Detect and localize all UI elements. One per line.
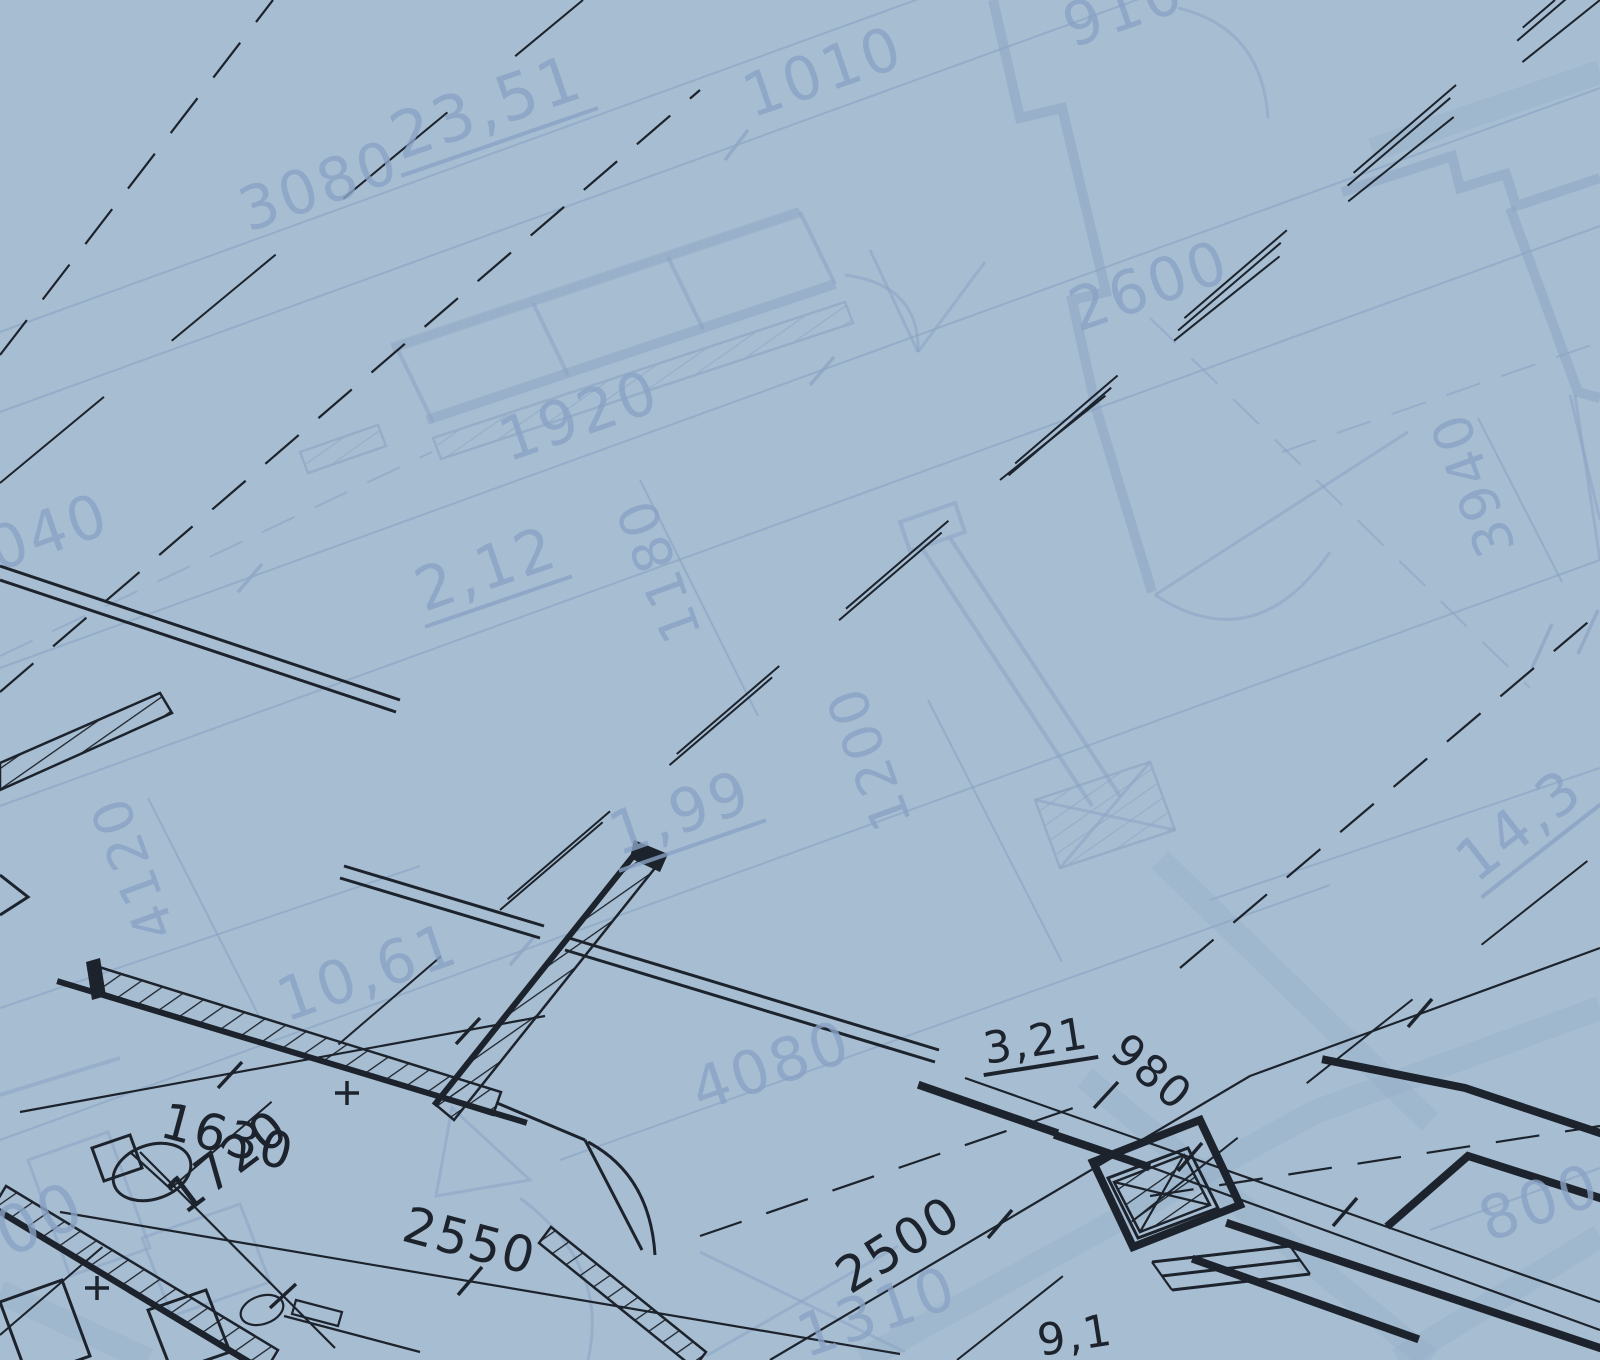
dimension-label-text: 1180 bbox=[604, 489, 714, 651]
faint-door-arc-top bbox=[845, 275, 918, 352]
dimension-label: 10,61 bbox=[268, 909, 467, 1036]
dimension-label: 9,1 bbox=[1034, 1305, 1117, 1360]
dark-hatched-walls bbox=[0, 693, 706, 1360]
faint-dashed-centerlines bbox=[0, 318, 1600, 688]
dimension-label: 14,3 bbox=[1440, 751, 1600, 898]
dimension-label-text: 1,99 bbox=[600, 757, 760, 871]
blueprint-canvas: 308023,511010910260019202,1210401,9910,6… bbox=[0, 0, 1600, 1360]
dimension-label-text: 910 bbox=[1054, 0, 1194, 62]
dimension-label: 3,21 bbox=[976, 1007, 1099, 1076]
dimension-labels: 308023,511010910260019202,1210401,9910,6… bbox=[0, 0, 1600, 1360]
dimension-label: 2,12 bbox=[402, 511, 572, 628]
dimension-label-text: 10,61 bbox=[268, 909, 467, 1036]
dimension-label-text: 4120 bbox=[78, 787, 188, 949]
faint-wall-top-fragment bbox=[300, 212, 985, 473]
dimension-label: 3080 bbox=[230, 126, 409, 246]
dark-room-walls bbox=[497, 1060, 1600, 1348]
dimension-label: 1040 bbox=[0, 479, 119, 599]
dimension-label-text: 1200 bbox=[814, 677, 924, 839]
blueprint-drawing: 308023,511010910260019202,1210401,9910,6… bbox=[0, 0, 1600, 1360]
dimension-label: 4120 bbox=[78, 787, 188, 949]
faint-door-arc bbox=[1155, 552, 1330, 619]
dimension-label: 1180 bbox=[604, 489, 714, 651]
faint-wall-door-1010 bbox=[993, 0, 1408, 619]
dimension-label: 910 bbox=[1054, 0, 1194, 62]
dimension-label-text: 3080 bbox=[230, 126, 409, 246]
dimension-label-text: 1040 bbox=[0, 479, 119, 599]
dimension-label-text: 9,1 bbox=[1034, 1305, 1117, 1360]
dimension-label-text: 4080 bbox=[682, 1006, 861, 1126]
dimension-label-text: 2600 bbox=[1060, 226, 1239, 346]
dark-door-arc bbox=[588, 1142, 655, 1255]
dimension-label: 4080 bbox=[682, 1006, 861, 1126]
dimension-label: 1,99 bbox=[596, 755, 766, 872]
dimension-label: 1200 bbox=[814, 677, 924, 839]
dimension-label: 2600 bbox=[1060, 226, 1239, 346]
